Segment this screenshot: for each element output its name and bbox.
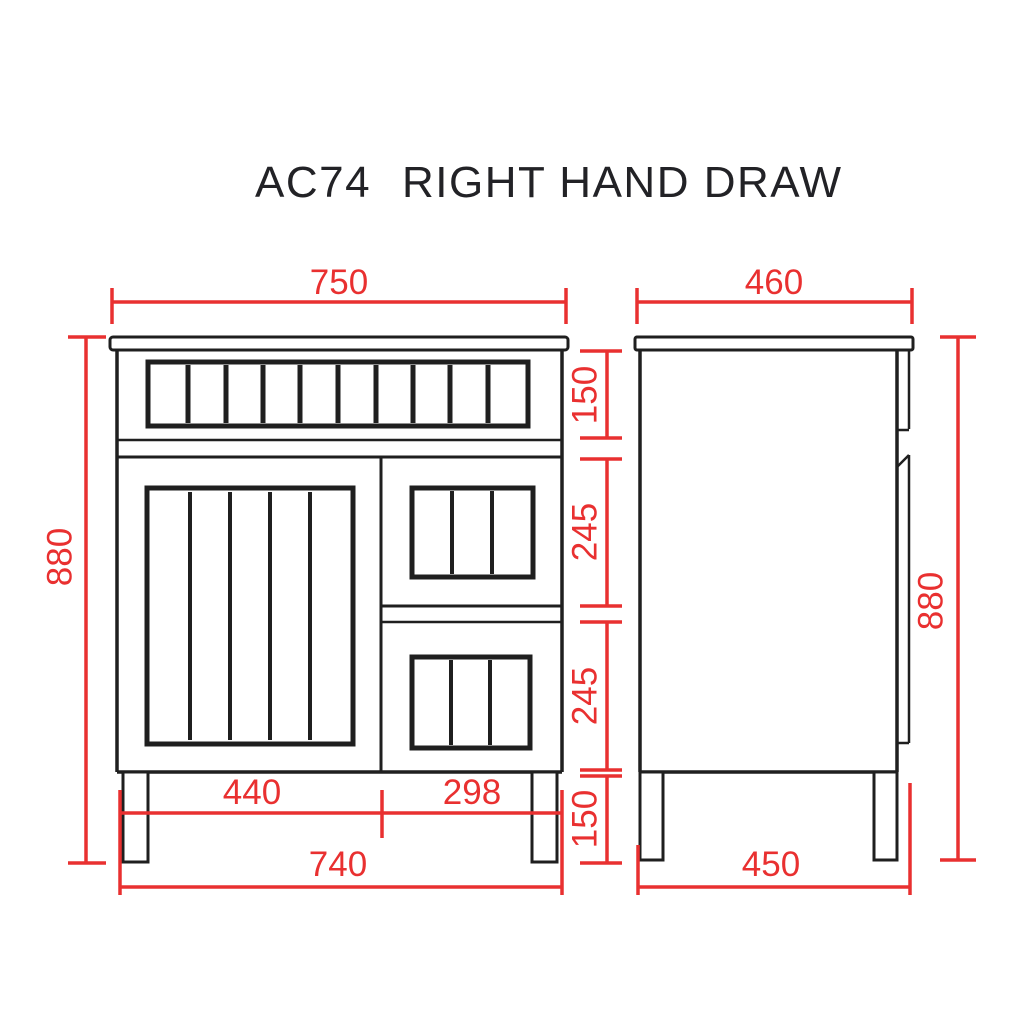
side-right-leg — [874, 772, 897, 860]
door-frame — [147, 488, 353, 744]
dim-legs-label: 150 — [566, 790, 605, 848]
dim-upper-drawer-label: 245 — [566, 503, 605, 561]
dim-side-base-depth-label: 450 — [742, 845, 800, 884]
dim-base-width: 740 — [120, 845, 562, 887]
model-code: AC74 — [255, 158, 371, 207]
dim-base-width-label: 740 — [309, 845, 367, 884]
side-left-leg — [640, 772, 663, 860]
front-upper-drawer — [412, 488, 533, 577]
configuration-label: RIGHT HAND DRAW — [402, 158, 843, 207]
dim-front-width: 750 — [112, 263, 566, 324]
dim-lower-drawer: 245 — [566, 622, 623, 770]
dim-side-depth-label: 460 — [745, 263, 803, 302]
side-front-panel-profile — [897, 351, 909, 743]
front-countertop — [110, 337, 568, 350]
dim-front-height: 880 — [41, 337, 107, 863]
dim-side-depth: 460 — [637, 263, 912, 324]
side-dimensions: 460 880 450 — [637, 263, 976, 895]
side-view — [635, 337, 913, 860]
dim-legs: 150 — [566, 776, 623, 863]
dim-lower-drawer-label: 245 — [566, 667, 605, 725]
front-right-leg — [532, 772, 557, 862]
dim-top-section-label: 150 — [566, 366, 605, 424]
lower-drawer-panel — [412, 657, 530, 748]
drawing-title: AC74 RIGHT HAND DRAW — [255, 158, 843, 207]
front-door — [147, 488, 353, 744]
dim-door-width-label: 440 — [223, 773, 281, 812]
upper-drawer-panel — [412, 488, 533, 577]
dim-top-section: 150 — [566, 351, 623, 438]
technical-drawing: AC74 RIGHT HAND DRAW — [0, 0, 1024, 1024]
side-countertop — [635, 337, 913, 350]
dim-upper-drawer: 245 — [566, 459, 623, 606]
dim-drawer-width-label: 298 — [443, 773, 501, 812]
front-top-band — [148, 362, 528, 426]
dim-front-height-label: 880 — [41, 528, 80, 586]
dim-side-base-depth: 450 — [638, 783, 910, 895]
dim-side-height: 880 — [912, 337, 977, 860]
dim-front-width-label: 750 — [310, 263, 368, 302]
dim-side-height-label: 880 — [912, 572, 951, 630]
front-left-leg — [123, 772, 148, 862]
front-lower-drawer — [412, 657, 530, 748]
side-body-outline — [640, 350, 897, 772]
